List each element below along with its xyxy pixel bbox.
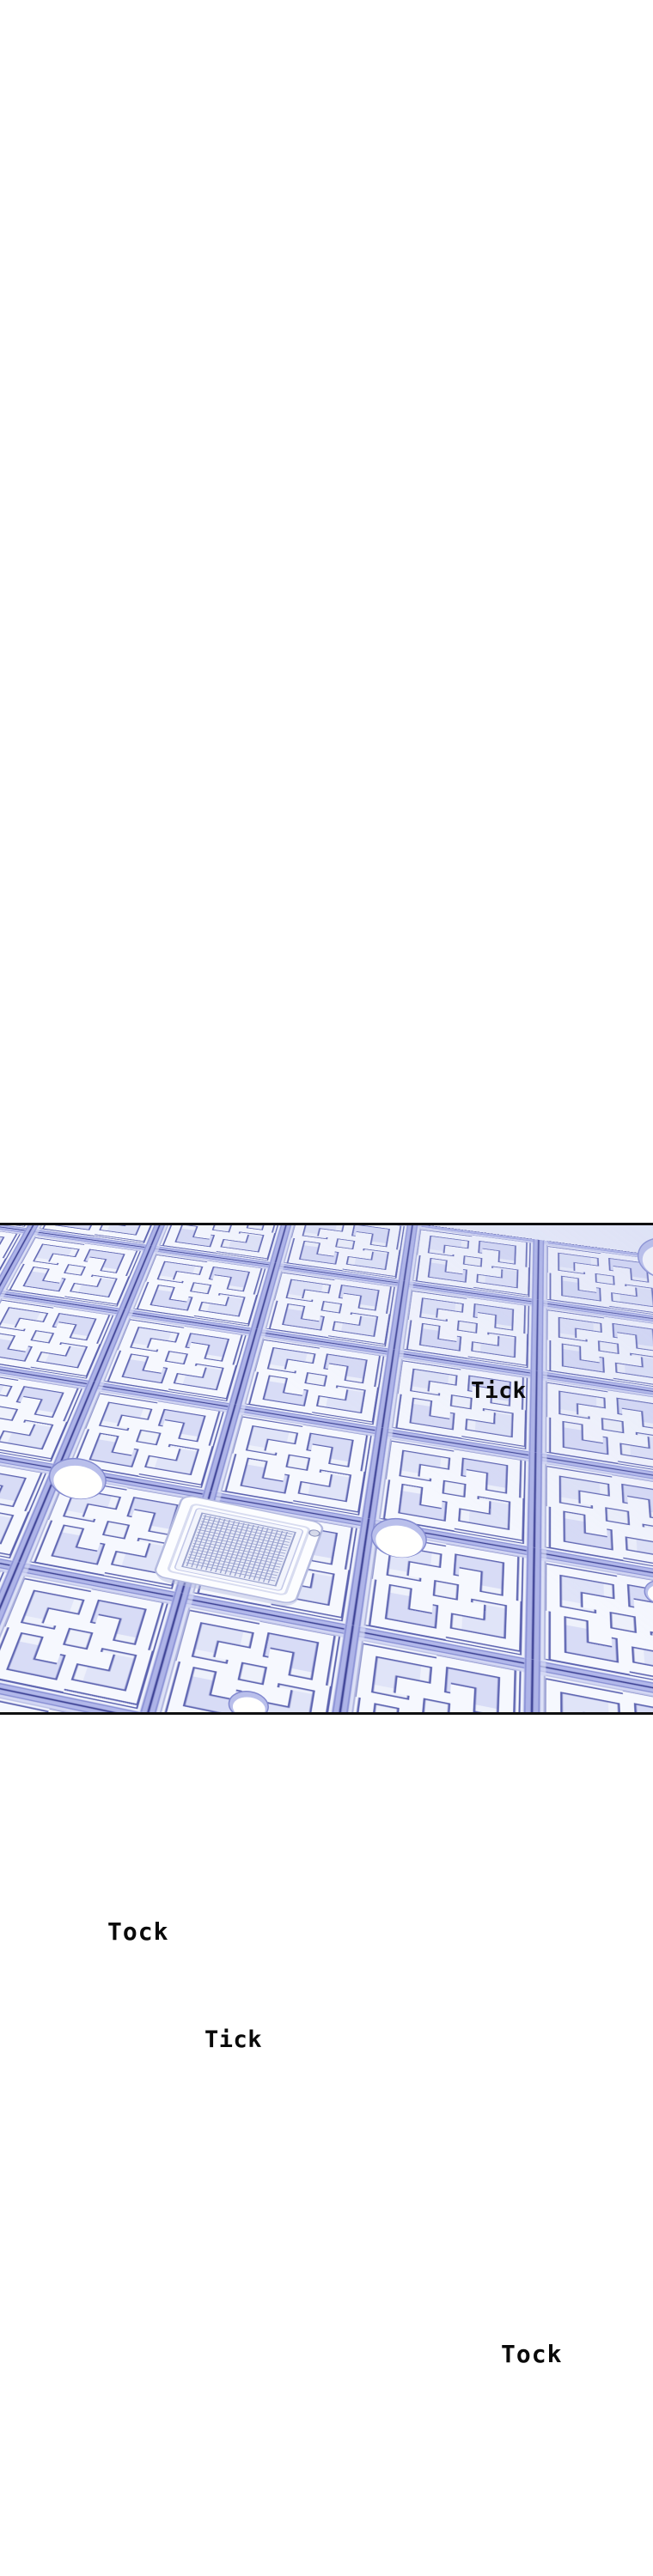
ceiling-tiles-svg [0,1223,653,1715]
comic-page: Tick Tock Tick Tock [0,0,653,2576]
sfx-tock-2: Tock [501,2342,562,2366]
ceiling-light-top-right [634,1233,653,1282]
sfx-tock-1: Tock [107,1920,168,1944]
ceiling-light-right-small [643,1578,653,1605]
sfx-tick-2: Tick [204,2028,262,2051]
sfx-tick-panel: Tick [471,1380,527,1402]
ceiling-plane [0,1223,653,1715]
ceiling-panel: Tick [0,1223,653,1715]
tile-grid [0,1223,653,1715]
